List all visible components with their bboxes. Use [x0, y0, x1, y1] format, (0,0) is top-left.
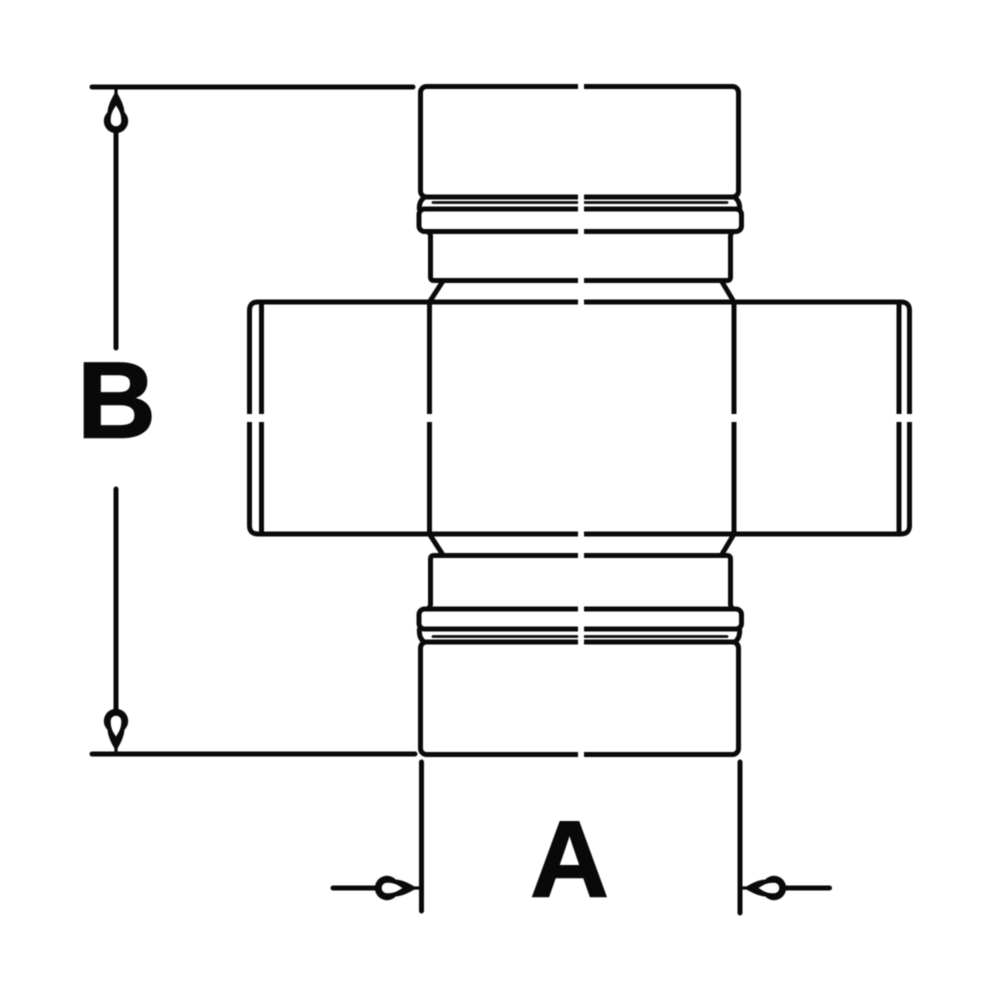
svg-text:A: A: [530, 799, 609, 921]
svg-text:B: B: [77, 340, 156, 462]
